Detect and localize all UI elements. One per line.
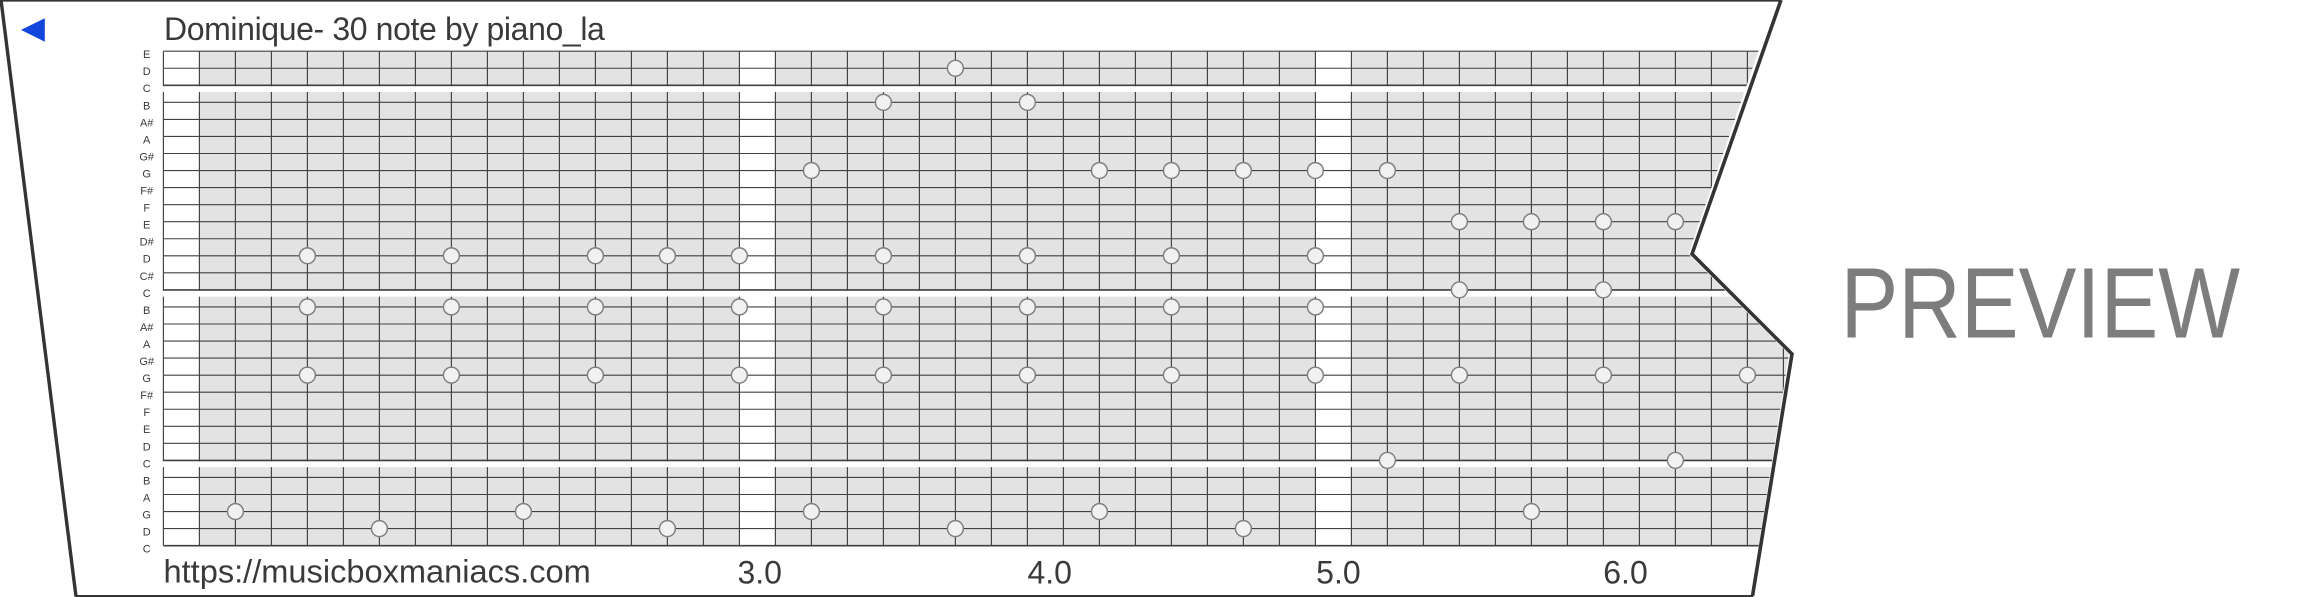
svg-text:G#: G# xyxy=(139,151,155,163)
svg-text:G: G xyxy=(142,168,151,180)
svg-text:Dominique- 30 note by piano_la: Dominique- 30 note by piano_la xyxy=(164,11,605,47)
svg-text:G: G xyxy=(142,373,151,385)
svg-text:5.0: 5.0 xyxy=(1316,554,1360,590)
svg-text:C: C xyxy=(143,458,151,470)
svg-text:E: E xyxy=(143,49,150,61)
svg-text:C#: C# xyxy=(140,271,155,283)
svg-text:F#: F# xyxy=(140,186,154,198)
svg-text:3.0: 3.0 xyxy=(737,554,781,590)
svg-text:B: B xyxy=(143,305,150,317)
svg-text:C: C xyxy=(143,544,151,556)
svg-text:G: G xyxy=(142,509,151,521)
svg-text:G#: G# xyxy=(139,356,155,368)
svg-text:PREVIEW: PREVIEW xyxy=(1841,246,2241,358)
svg-text:B: B xyxy=(143,475,150,487)
svg-text:https://musicboxmaniacs.com: https://musicboxmaniacs.com xyxy=(164,553,591,590)
svg-text:6.0: 6.0 xyxy=(1603,554,1647,590)
svg-text:A: A xyxy=(143,134,151,146)
svg-text:C: C xyxy=(143,288,151,300)
svg-text:C: C xyxy=(143,83,151,95)
svg-text:F: F xyxy=(143,407,150,419)
svg-text:D: D xyxy=(143,441,151,453)
svg-text:F#: F# xyxy=(140,390,154,402)
svg-text:E: E xyxy=(143,220,150,232)
svg-text:F: F xyxy=(143,203,150,215)
svg-text:E: E xyxy=(143,424,150,436)
svg-text:A#: A# xyxy=(140,322,154,334)
svg-text:D: D xyxy=(143,254,151,266)
svg-text:A#: A# xyxy=(140,117,154,129)
svg-text:4.0: 4.0 xyxy=(1027,554,1071,590)
svg-text:B: B xyxy=(143,100,150,112)
svg-text:D#: D# xyxy=(140,237,155,249)
svg-text:A: A xyxy=(143,339,151,351)
svg-text:D: D xyxy=(143,66,151,78)
svg-text:A: A xyxy=(143,492,151,504)
svg-text:D: D xyxy=(143,527,151,539)
